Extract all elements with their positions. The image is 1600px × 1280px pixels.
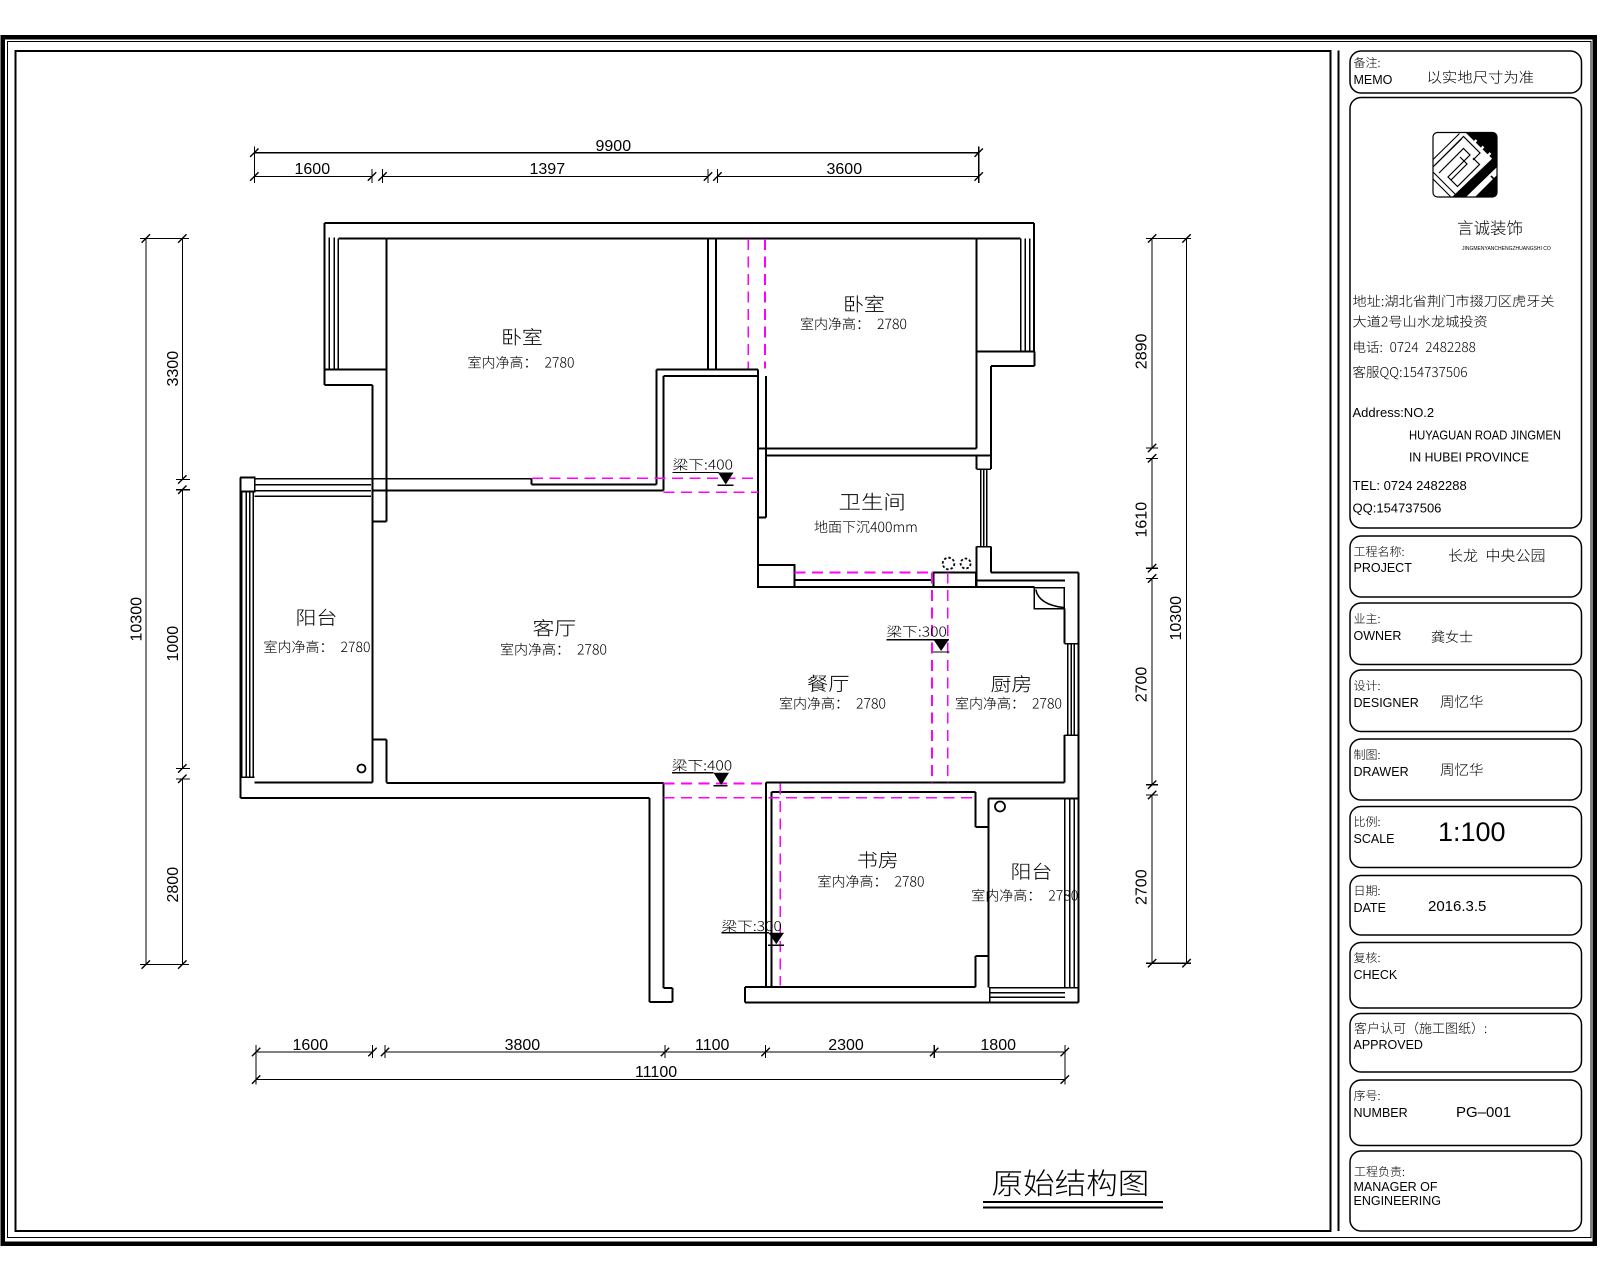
svg-text:1397: 1397 — [530, 161, 566, 178]
svg-text:11100: 11100 — [635, 1064, 677, 1081]
svg-text:OWNER: OWNER — [1354, 629, 1402, 643]
svg-text:1600: 1600 — [295, 161, 331, 178]
svg-text:MANAGER OF: MANAGER OF — [1354, 1180, 1438, 1194]
svg-text:HUYAGUAN ROAD JINGMEN: HUYAGUAN ROAD JINGMEN — [1409, 428, 1561, 443]
svg-text:DATE: DATE — [1354, 901, 1386, 915]
svg-text:JINGMENYANCHENGZHUANGSHI CO: JINGMENYANCHENGZHUANGSHI CO — [1462, 246, 1551, 252]
svg-text:QQ:154737506: QQ:154737506 — [1353, 501, 1442, 516]
svg-text:2700: 2700 — [1134, 869, 1151, 905]
svg-text:SCALE: SCALE — [1354, 832, 1395, 846]
svg-text:10300: 10300 — [1168, 596, 1185, 641]
svg-text:1000: 1000 — [165, 626, 182, 662]
svg-text:1:100: 1:100 — [1438, 817, 1506, 847]
svg-text:1100: 1100 — [695, 1037, 730, 1054]
svg-text:2700: 2700 — [1134, 667, 1151, 703]
svg-text:ENGINEERING: ENGINEERING — [1354, 1194, 1442, 1208]
svg-text:10300: 10300 — [129, 597, 146, 642]
svg-text:Address:NO.2: Address:NO.2 — [1353, 405, 1435, 420]
svg-text:2800: 2800 — [165, 867, 182, 903]
svg-text:1600: 1600 — [293, 1037, 329, 1054]
svg-text:DRAWER: DRAWER — [1354, 765, 1409, 779]
svg-text:2016.3.5: 2016.3.5 — [1428, 898, 1486, 915]
svg-text:PG–001: PG–001 — [1456, 1104, 1511, 1121]
svg-text:9900: 9900 — [596, 138, 632, 155]
svg-text:CHECK: CHECK — [1354, 968, 1398, 982]
svg-text:2890: 2890 — [1134, 334, 1151, 370]
svg-text:IN HUBEI PROVINCE: IN HUBEI PROVINCE — [1409, 450, 1529, 465]
svg-text:MEMO: MEMO — [1354, 73, 1393, 87]
svg-text:1610: 1610 — [1134, 502, 1151, 538]
svg-text:2300: 2300 — [828, 1037, 864, 1054]
svg-text:3600: 3600 — [827, 161, 863, 178]
svg-text:PROJECT: PROJECT — [1354, 561, 1413, 575]
svg-text:3800: 3800 — [505, 1037, 541, 1054]
svg-text:1800: 1800 — [980, 1037, 1016, 1054]
svg-text:DESIGNER: DESIGNER — [1354, 696, 1419, 710]
svg-text:TEL: 0724 2482288: TEL: 0724 2482288 — [1353, 478, 1467, 493]
svg-text:3300: 3300 — [165, 351, 182, 387]
svg-text:NUMBER: NUMBER — [1354, 1106, 1408, 1120]
svg-text:APPROVED: APPROVED — [1354, 1038, 1423, 1052]
